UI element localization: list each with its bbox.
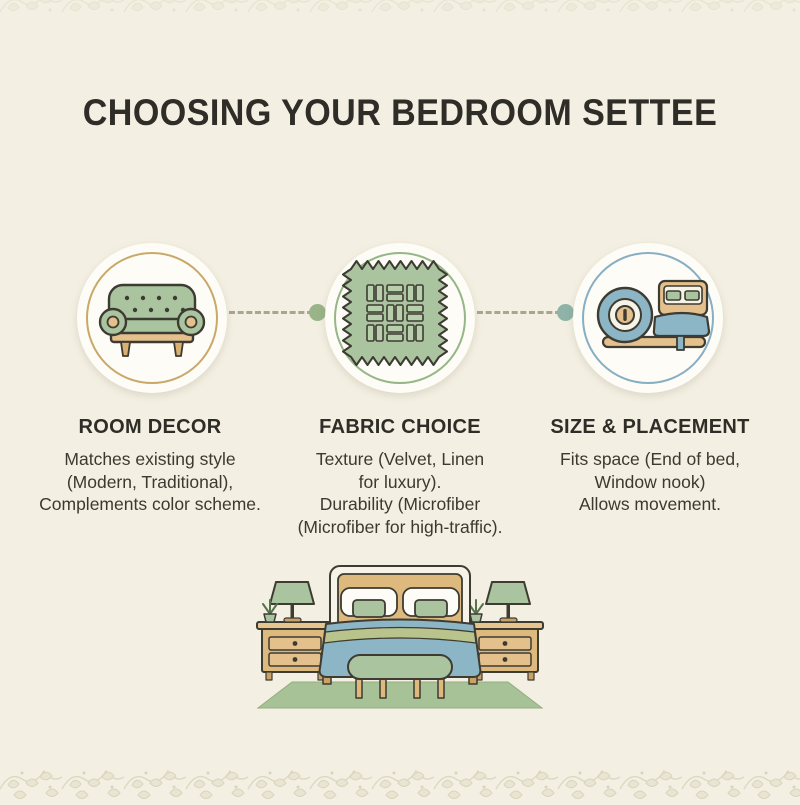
step-line: Complements color scheme. (25, 493, 275, 516)
step-circle-size-placement (573, 243, 723, 393)
connector-dot-green (309, 304, 326, 321)
measuring-tape-bed-icon (573, 243, 723, 393)
infographic-canvas: CHOOSING YOUR BEDROOM SETTEE (0, 0, 800, 800)
decorative-border-bottom (0, 760, 800, 800)
step-text-room-decor: ROOM DECOR Matches existing style (Moder… (25, 416, 275, 516)
step-heading: SIZE & PLACEMENT (525, 416, 775, 439)
plant-right (469, 600, 483, 622)
cushion-left (353, 600, 385, 617)
step-line: Texture (Velvet, Linen (275, 448, 525, 471)
step-line: Fits space (End of bed, (525, 448, 775, 471)
fabric-swatch-icon (325, 243, 475, 393)
step-heading: ROOM DECOR (25, 416, 275, 439)
lamp-right (486, 582, 530, 622)
step-text-size-placement: SIZE & PLACEMENT Fits space (End of bed,… (525, 416, 775, 516)
step-line: Durability (Microfiber (275, 493, 525, 516)
step-line: (Modern, Traditional), (25, 471, 275, 494)
step-circle-fabric-choice (325, 243, 475, 393)
step-circle-room-decor (77, 243, 227, 393)
step-line: for luxury). (275, 471, 525, 494)
bedroom-scene-illustration (230, 552, 570, 722)
decorative-border-top (0, 0, 800, 18)
step-line: (Microfiber for high-traffic). (275, 516, 525, 539)
cushion-right (415, 600, 447, 617)
page-title: CHOOSING YOUR BEDROOM SETTEE (32, 92, 768, 134)
leaf-vine-border-bottom-icon (0, 760, 800, 800)
step-line: Allows movement. (525, 493, 775, 516)
leaf-vine-border-top-icon (0, 0, 800, 40)
rug (258, 682, 542, 708)
step-heading: FABRIC CHOICE (275, 416, 525, 439)
settee-icon (77, 243, 227, 393)
connector-dashed-line-1 (229, 311, 313, 314)
step-text-fabric-choice: FABRIC CHOICE Texture (Velvet, Linen for… (275, 416, 525, 538)
connector-dashed-line-2 (477, 311, 561, 314)
connector-dot-teal (557, 304, 574, 321)
step-line: Window nook) (525, 471, 775, 494)
step-line: Matches existing style (25, 448, 275, 471)
bedroom-scene (230, 552, 570, 722)
lamp-left (270, 582, 314, 622)
